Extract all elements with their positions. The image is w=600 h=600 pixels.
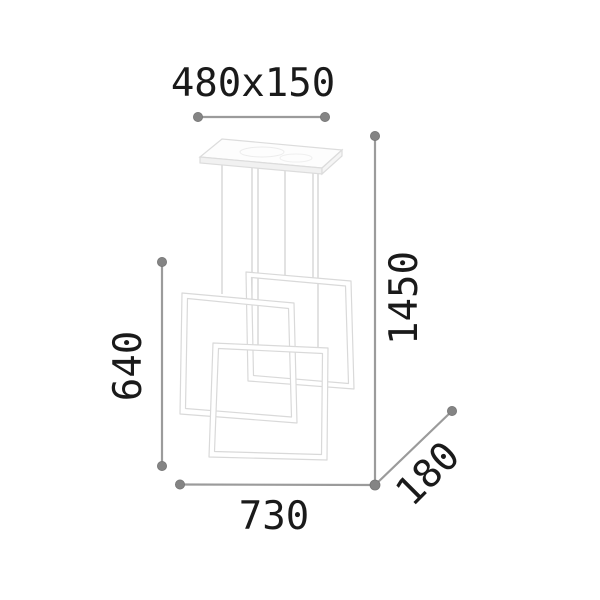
pendant-lamp xyxy=(180,139,354,460)
dimension-endpoint-dot xyxy=(370,131,379,140)
dimension-label-depth: 180 xyxy=(387,433,469,515)
suspension-wires xyxy=(222,164,318,347)
light-frame-left xyxy=(180,293,297,423)
dimension-canopy: 480x150 xyxy=(171,61,335,122)
dimension-endpoint-dot xyxy=(447,406,456,415)
dimension-width: 730 xyxy=(175,480,375,539)
dimension-label-frames-height: 640 xyxy=(106,331,151,401)
dimension-endpoint-dot xyxy=(157,461,166,470)
dimension-depth: 180 xyxy=(370,406,469,515)
dimension-junction-dot xyxy=(370,480,380,490)
dimension-frames-height: 640 xyxy=(106,257,167,470)
light-frame-front xyxy=(209,343,328,460)
dimension-diagram-canvas: 480x150 1450 640 730 xyxy=(0,0,600,600)
dimension-endpoint-dot xyxy=(320,112,329,121)
pendant-lamp-dimension-drawing: 480x150 1450 640 730 xyxy=(0,0,600,600)
dimension-total-height: 1450 xyxy=(370,131,427,485)
light-frame-back xyxy=(246,272,354,389)
dimension-label-width: 730 xyxy=(239,494,309,539)
dimension-label-canopy: 480x150 xyxy=(171,61,335,106)
dimension-label-total-height: 1450 xyxy=(382,251,427,345)
dimension-line-width xyxy=(180,485,375,486)
dimension-annotations: 480x150 1450 640 730 xyxy=(106,61,469,539)
ceiling-canopy xyxy=(200,139,342,174)
dimension-endpoint-dot xyxy=(175,480,184,489)
dimension-endpoint-dot xyxy=(193,112,202,121)
dimension-endpoint-dot xyxy=(157,257,166,266)
